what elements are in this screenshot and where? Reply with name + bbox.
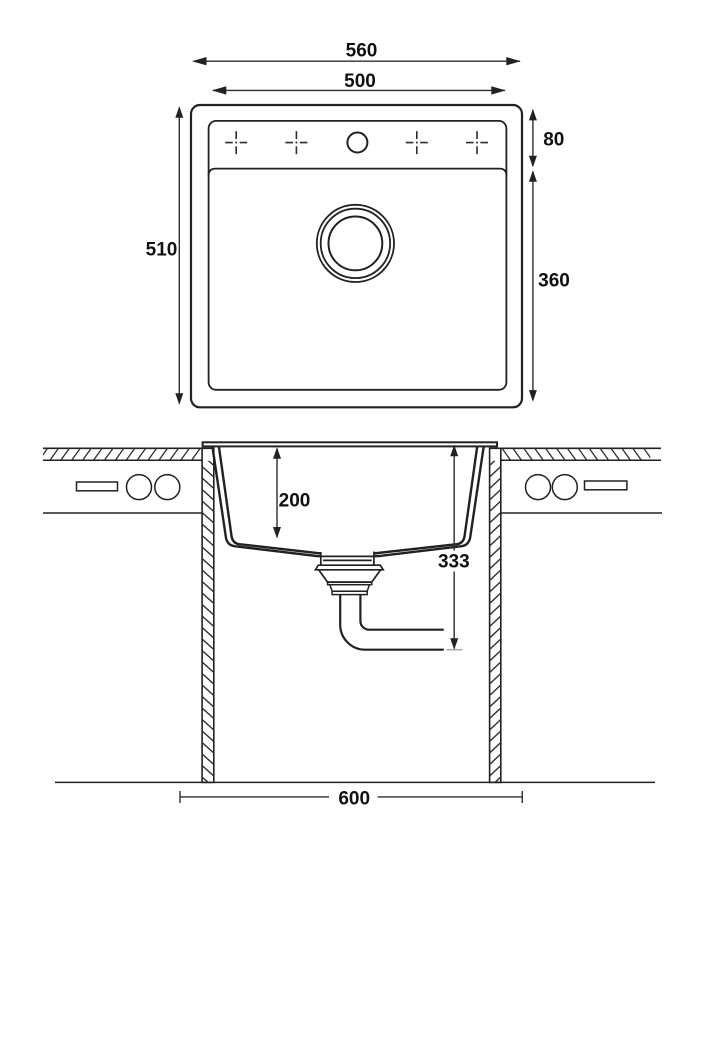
svg-text:500: 500 <box>344 71 376 92</box>
svg-text:600: 600 <box>338 789 370 810</box>
svg-text:80: 80 <box>543 130 564 151</box>
svg-text:333: 333 <box>438 552 470 573</box>
svg-text:360: 360 <box>538 271 570 292</box>
svg-text:560: 560 <box>346 41 378 62</box>
svg-text:510: 510 <box>146 240 178 261</box>
svg-text:200: 200 <box>279 491 311 512</box>
